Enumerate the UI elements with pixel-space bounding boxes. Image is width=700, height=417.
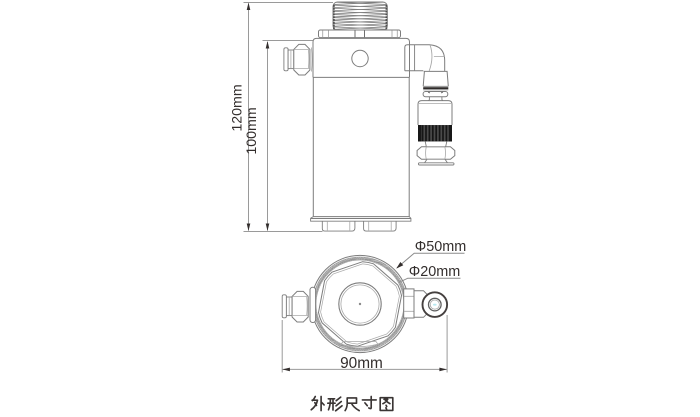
svg-text:Φ20mm: Φ20mm xyxy=(409,264,460,280)
svg-text:90mm: 90mm xyxy=(340,355,383,372)
svg-text:100mm: 100mm xyxy=(244,107,260,154)
svg-text:Φ50mm: Φ50mm xyxy=(415,239,466,255)
svg-text:120mm: 120mm xyxy=(230,84,246,131)
